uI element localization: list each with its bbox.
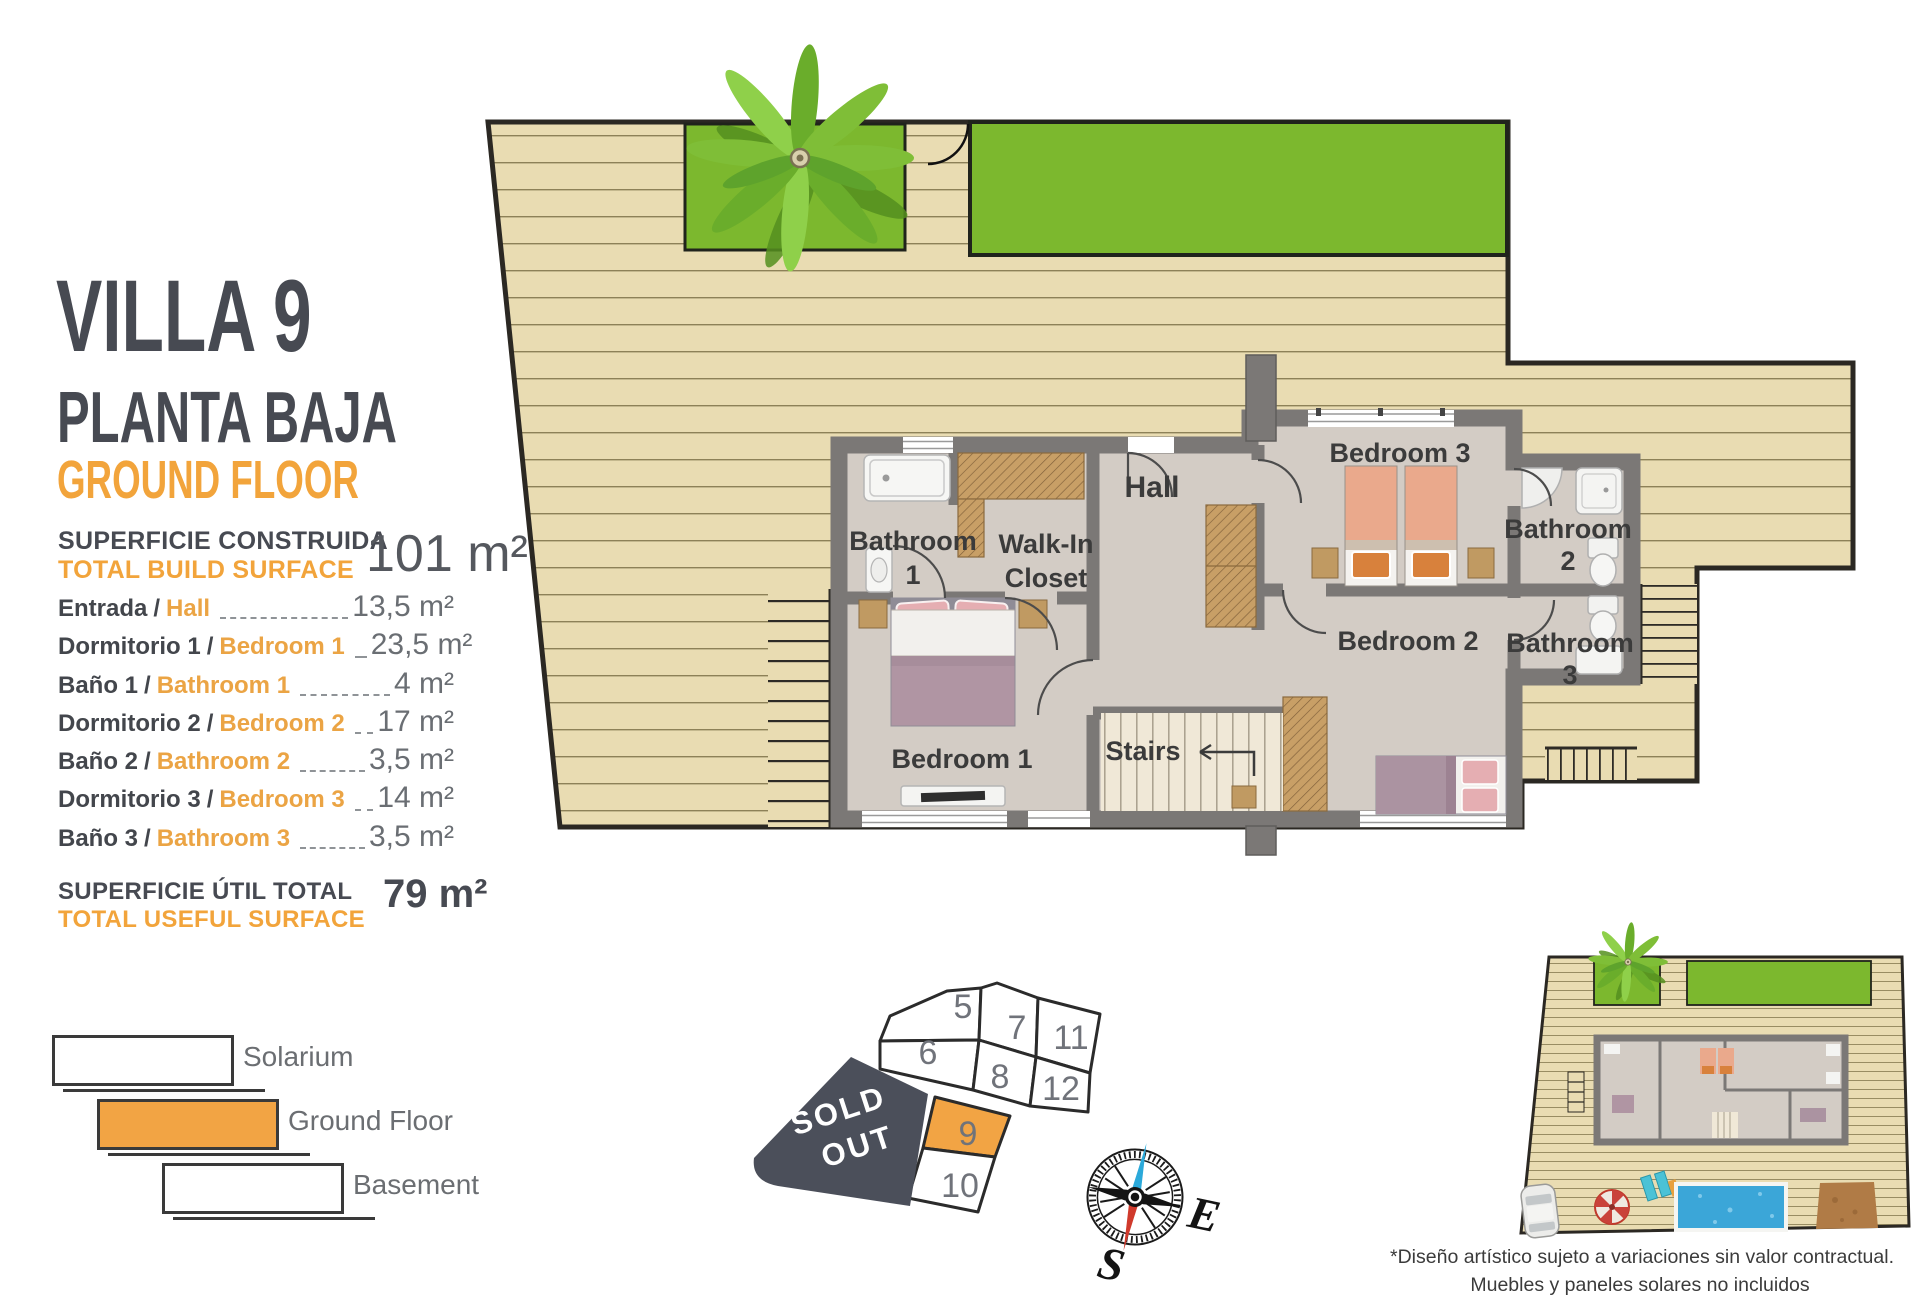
room-name-es: Dormitorio 1 <box>58 633 201 661</box>
main-floor-plan: Bathroom 1 Walk-In Closet Hall Bedroom 3… <box>488 43 1853 855</box>
room-name-en: Bathroom 1 <box>157 672 290 700</box>
plot-number-12: 12 <box>1042 1070 1080 1108</box>
room-name-en: Bathroom 3 <box>157 825 290 853</box>
leader-line <box>300 694 390 696</box>
legend-box-solarium <box>52 1035 234 1086</box>
plot-number-7: 7 <box>1008 1009 1027 1047</box>
plot-number-8: 8 <box>991 1058 1010 1096</box>
page: { "header": {"title": "VILLA 9", "subtit… <box>0 0 1920 1280</box>
wall-tower <box>1246 355 1276 441</box>
build-surface-value: 101 m² <box>366 524 528 584</box>
leader-line <box>355 809 374 811</box>
compass-rose: E S <box>1068 1133 1231 1280</box>
room-name-es: Baño 1 <box>58 672 138 700</box>
useful-surface-label-es: SUPERFICIE ÚTIL TOTAL <box>58 878 365 906</box>
room-row-bedroom1: Dormitorio 1/Bedroom 1 23,5 m² <box>58 628 454 666</box>
leader-line <box>300 770 365 772</box>
room-area-value: 3,5 m² <box>369 743 454 777</box>
disclaimer: *Diseño artístico sujeto a variaciones s… <box>1390 1244 1890 1299</box>
tv-bench <box>901 786 1005 806</box>
compass-east-label: E <box>1183 1186 1225 1242</box>
room-name-en: Bedroom 1 <box>219 633 344 661</box>
floor-subtitle-es: PLANTA BAJA <box>57 384 397 452</box>
lawn-large <box>970 122 1507 255</box>
room-area-value: 13,5 m² <box>352 590 454 624</box>
room-area-list: Entrada/Hall 13,5 m² Dormitorio 1/Bedroo… <box>58 590 454 858</box>
plot-number-6: 6 <box>919 1034 938 1072</box>
room-area-value: 17 m² <box>377 705 454 739</box>
useful-surface-block: SUPERFICIE ÚTIL TOTAL TOTAL USEFUL SURFA… <box>58 878 365 934</box>
legend-label-ground-floor: Ground Floor <box>288 1105 453 1137</box>
disclaimer-line2: Muebles y paneles solares no incluidos <box>1390 1272 1890 1299</box>
room-area-value: 3,5 m² <box>369 820 454 854</box>
label-bathroom2-line1: Bathroom <box>1504 514 1632 544</box>
floor-subtitle-en: GROUND FLOOR <box>57 455 359 506</box>
build-surface-block: SUPERFICIE CONSTRUIDA TOTAL BUILD SURFAC… <box>58 527 388 585</box>
room-name-en: Bathroom 2 <box>157 748 290 776</box>
disclaimer-line1: *Diseño artístico sujeto a variaciones s… <box>1390 1244 1890 1272</box>
legend-label-solarium: Solarium <box>243 1041 353 1073</box>
label-bathroom2-line2: 2 <box>1560 546 1575 576</box>
room-name-es: Dormitorio 3 <box>58 786 201 814</box>
site-plan: SOLD OUT 5 7 11 6 8 12 9 10 <box>754 983 1100 1212</box>
room-row-hall: Entrada/Hall 13,5 m² <box>58 590 454 628</box>
leader-line <box>355 732 374 734</box>
leader-line <box>220 617 348 619</box>
label-bathroom1-line2: 1 <box>905 560 920 590</box>
room-name-es: Baño 3 <box>58 825 138 853</box>
room-row-bathroom1: Baño 1/Bathroom 1 4 m² <box>58 667 454 705</box>
room-row-bathroom3: Baño 3/Bathroom 3 3,5 m² <box>58 820 454 858</box>
leader-line <box>300 847 365 849</box>
build-surface-label-en: TOTAL BUILD SURFACE <box>58 556 388 585</box>
mini-site-plan <box>1520 922 1909 1239</box>
label-bedroom1: Bedroom 1 <box>891 744 1032 774</box>
useful-surface-value: 79 m² <box>383 872 488 917</box>
room-name-es: Dormitorio 2 <box>58 710 201 738</box>
legend-label-basement: Basement <box>353 1169 479 1201</box>
room-area-value: 14 m² <box>377 781 454 815</box>
label-bedroom2: Bedroom 2 <box>1337 626 1478 656</box>
room-row-bathroom2: Baño 2/Bathroom 2 3,5 m² <box>58 743 454 781</box>
label-bathroom3-line1: Bathroom <box>1506 628 1634 658</box>
room-row-bedroom3: Dormitorio 3/Bedroom 3 14 m² <box>58 781 454 819</box>
plot-number-9: 9 <box>959 1115 978 1153</box>
useful-surface-label-en: TOTAL USEFUL SURFACE <box>58 906 365 934</box>
legend-box-ground-floor <box>97 1099 279 1150</box>
mini-car <box>1520 1183 1560 1239</box>
room-name-en: Hall <box>166 595 210 623</box>
room-name-en: Bedroom 3 <box>219 786 344 814</box>
room-row-bedroom2: Dormitorio 2/Bedroom 2 17 m² <box>58 705 454 743</box>
label-walkin-line2: Closet <box>1005 563 1088 593</box>
room-area-value: 4 m² <box>394 667 454 701</box>
plot-number-5: 5 <box>954 988 973 1026</box>
room-name-es: Baño 2 <box>58 748 138 776</box>
plot-number-10: 10 <box>941 1167 979 1205</box>
label-stairs: Stairs <box>1105 736 1180 766</box>
label-bedroom3: Bedroom 3 <box>1329 438 1470 468</box>
exterior-stairs-left <box>768 589 830 827</box>
room-area-value: 23,5 m² <box>371 628 473 662</box>
plot-number-11: 11 <box>1053 1019 1088 1057</box>
room-name-en: Bedroom 2 <box>219 710 344 738</box>
mini-house <box>1568 1038 1845 1142</box>
label-bathroom3-line2: 3 <box>1562 660 1577 690</box>
label-bathroom1-line1: Bathroom <box>849 526 977 556</box>
mini-pool <box>1676 1184 1786 1230</box>
compass-south-label: S <box>1094 1236 1130 1280</box>
mini-dirt-patch <box>1816 1182 1878 1229</box>
mini-umbrella <box>1595 1190 1629 1224</box>
wall-protrusion <box>1246 826 1276 855</box>
build-surface-label-es: SUPERFICIE CONSTRUIDA <box>58 527 388 556</box>
label-walkin-line1: Walk-In <box>998 529 1093 559</box>
label-hall: Hall <box>1124 471 1179 504</box>
sold-out-area <box>754 1057 928 1206</box>
legend-box-basement <box>162 1163 344 1214</box>
leader-line <box>355 656 367 658</box>
room-name-es: Entrada <box>58 595 147 623</box>
villa-title: VILLA 9 <box>56 268 312 365</box>
bathtub <box>864 455 950 501</box>
